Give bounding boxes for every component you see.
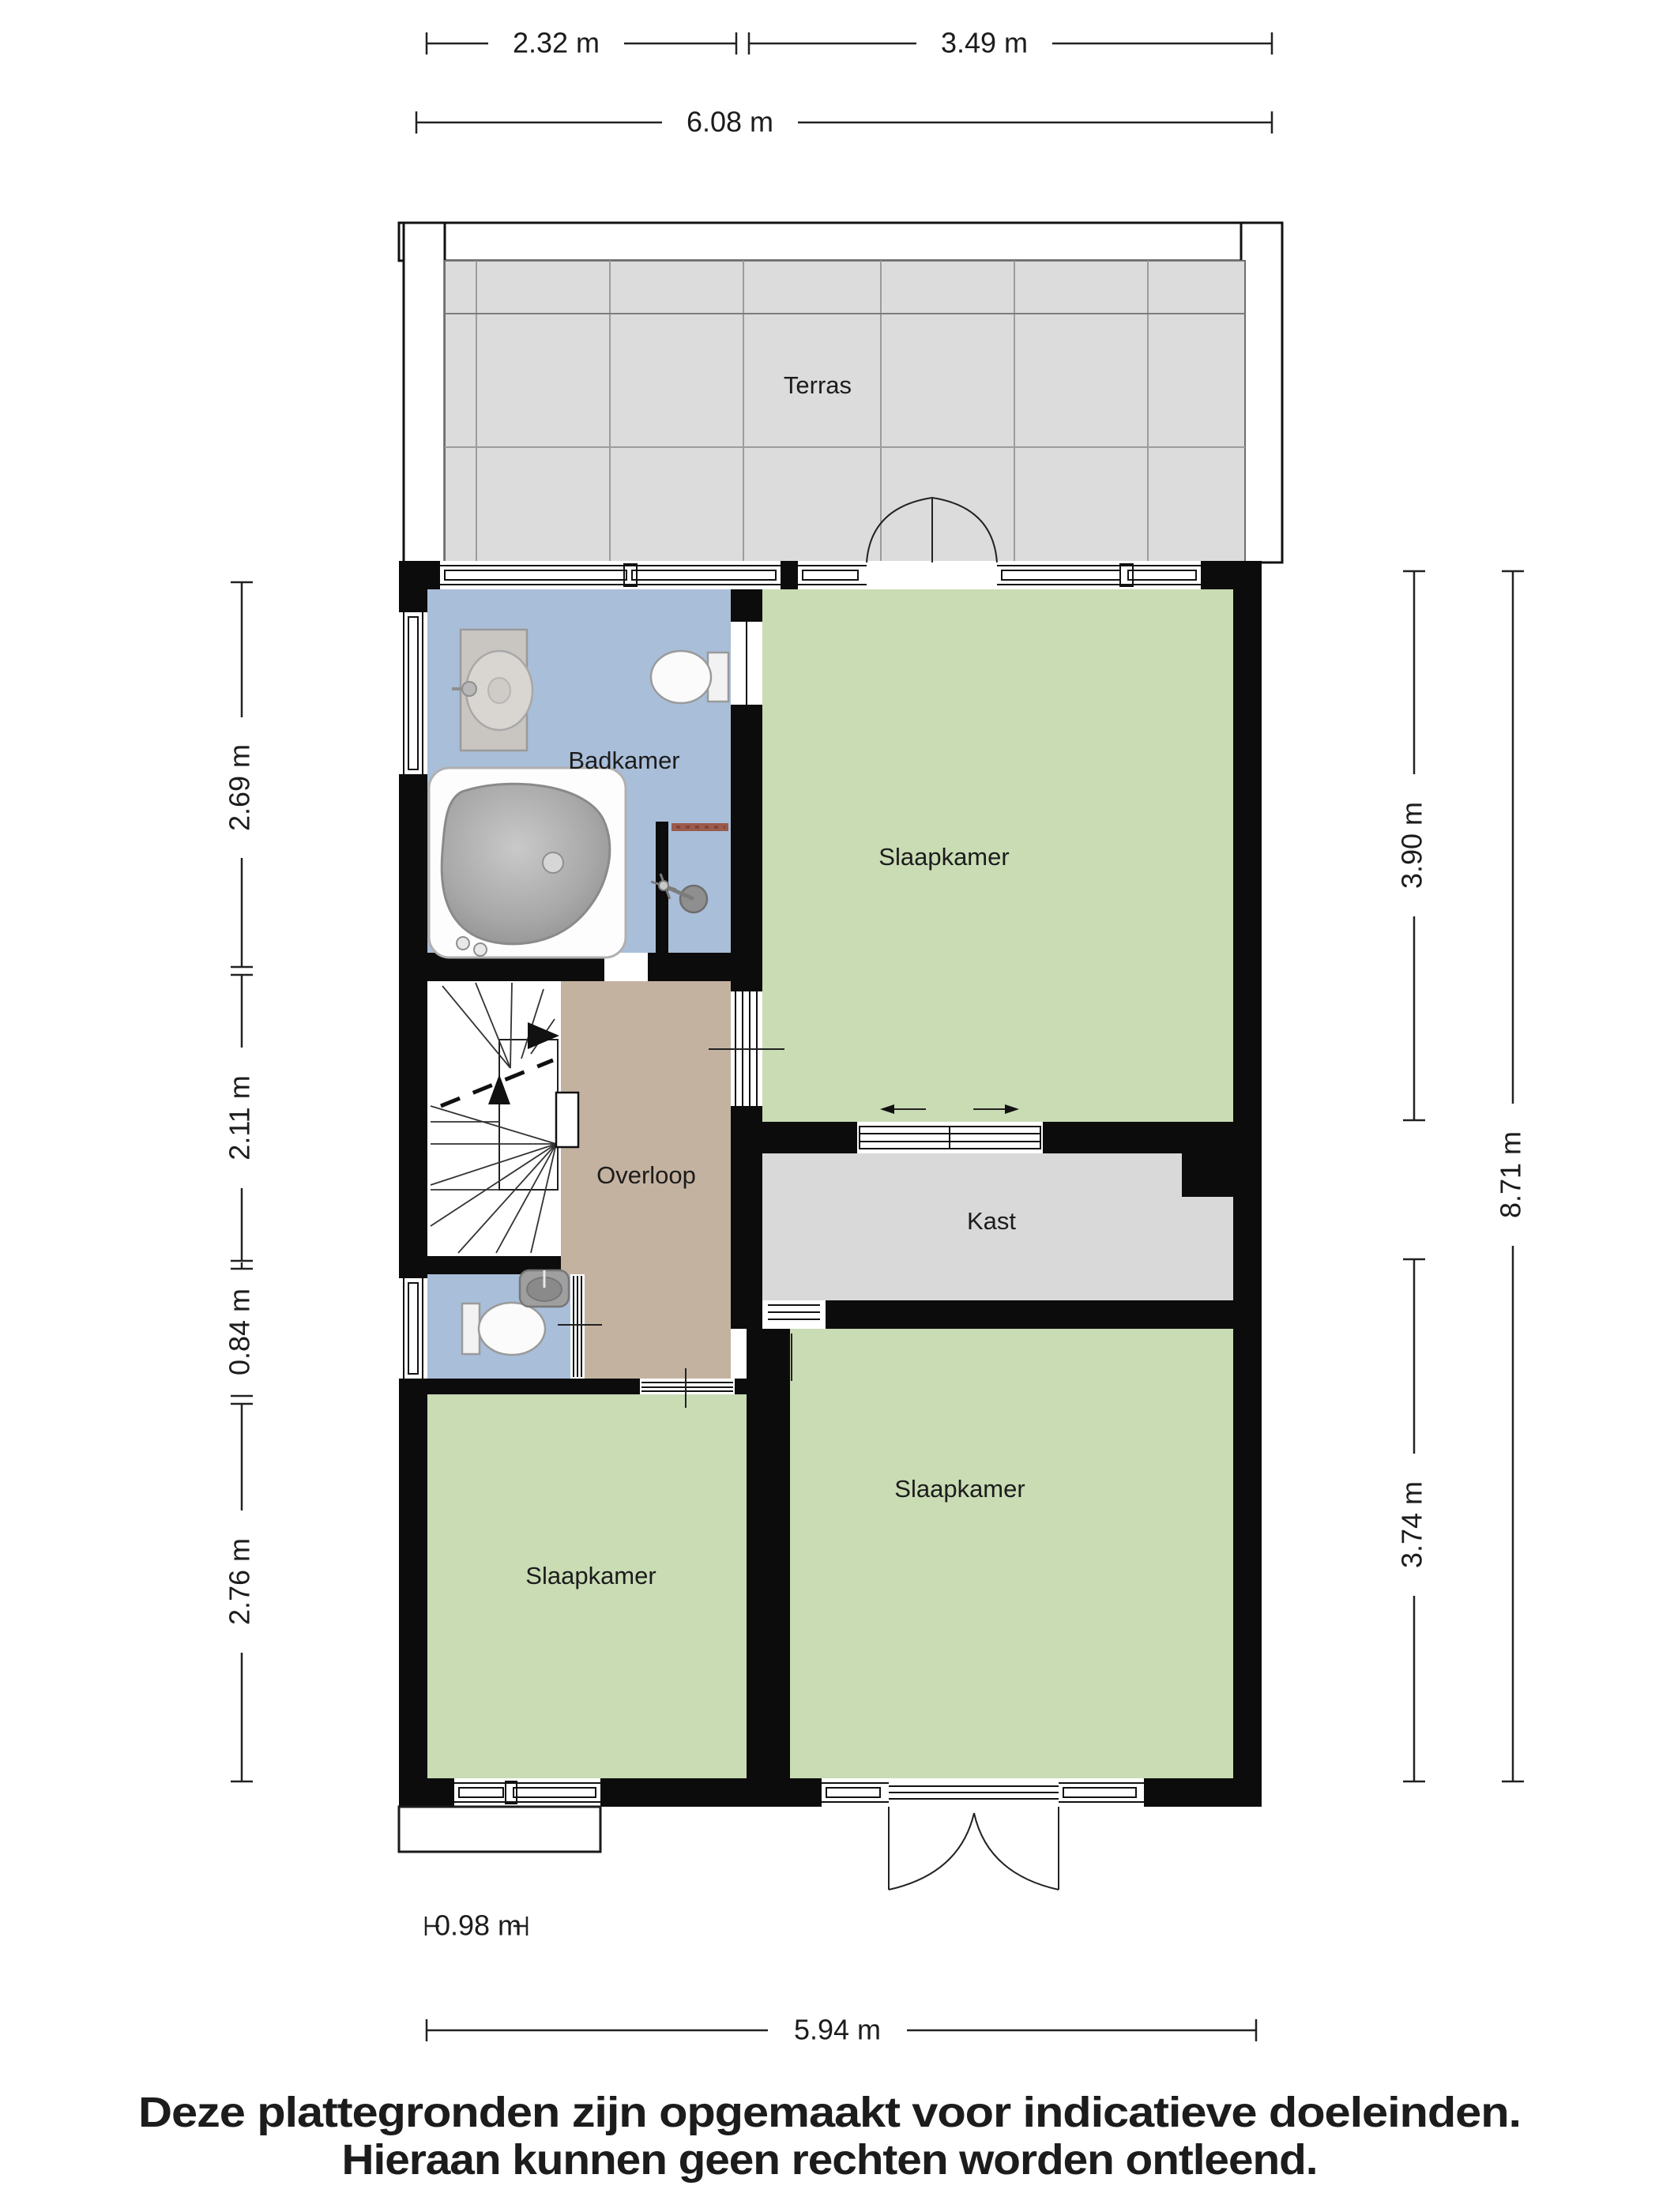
room-label-slaapkamer-top: Slaapkamer [878,843,1009,871]
dim-label-269: 2.69 m [224,744,256,831]
wc-sink [520,1270,569,1307]
dim-label-608: 6.08 m [687,106,773,138]
dimension-right-374: 3.74 m [1396,1259,1428,1781]
dimension-right-390: 3.90 m [1396,571,1428,1120]
dimension-left-276: 2.76 m [224,1404,256,1781]
floorplan-drawing: Terras [0,0,1659,2212]
dimension-bottom-594: 5.94 m [427,2014,1256,2046]
stairs-door-leaf [556,1093,578,1147]
wc-toilet [462,1303,545,1355]
dimension-left-084: 0.84 m [224,1262,256,1396]
dimension-top-232: 2.32 m [427,27,736,59]
wall-kast-corner-block [1182,1153,1233,1197]
door-garden-french [889,1807,1059,1890]
window-slaapkamer-left-bottom [454,1778,600,1807]
dim-label-390: 3.90 m [1396,802,1428,889]
room-label-slaapkamer-right: Slaapkamer [894,1475,1025,1503]
dimension-left-211: 2.11 m [224,975,256,1261]
dim-label-098: 0.98 m [434,1909,521,1942]
window-badkamer-top [440,561,781,589]
terrace-railing-top [399,223,1282,261]
dimension-top-349: 3.49 m [749,27,1272,59]
bathroom-sink [452,630,532,750]
terrace-railing-left [404,223,445,562]
disclaimer-line1: Deze plattegronden zijn opgemaakt voor i… [138,2089,1521,2136]
room-label-kast: Kast [967,1207,1016,1235]
wall-right [1233,561,1262,1807]
window-badkamer-left [399,612,427,774]
room-label-slaapkamer-left: Slaapkamer [525,1562,656,1589]
dimension-right-871: 8.71 m [1495,571,1527,1781]
wall-between-bedrooms [747,1300,790,1807]
dim-label-232: 2.32 m [513,27,600,59]
dim-label-871: 8.71 m [1495,1131,1527,1218]
ledge-outline [399,1807,600,1852]
floorplan-page: Terras [0,0,1659,2212]
terrace-floor [445,261,1245,562]
dim-label-084: 0.84 m [224,1288,256,1375]
dimension-bottom-098: 0.98 m [426,1909,527,1942]
disclaimer-line2: Hieraan kunnen geen rechten worden ontle… [342,2136,1318,2184]
terrace: Terras [399,223,1282,562]
dimension-top-608: 6.08 m [416,106,1272,138]
room-label-badkamer: Badkamer [568,747,679,774]
dim-label-349: 3.49 m [941,27,1028,59]
bathtub [429,768,626,957]
dim-label-374: 3.74 m [1396,1481,1428,1568]
bathroom-toilet [651,651,728,703]
dim-label-211: 2.11 m [224,1075,256,1160]
window-badkamer-slaapkamer [731,622,762,705]
terrace-railing-right [1241,223,1282,562]
window-wc-left [399,1278,427,1379]
window-slaapkamer-right-bottom [822,1778,1144,1807]
room-label-terras: Terras [784,371,852,399]
dimension-left-269: 2.69 m [224,582,256,967]
room-label-overloop: Overloop [596,1161,696,1189]
dim-label-276: 2.76 m [224,1538,256,1625]
dim-label-594: 5.94 m [794,2014,881,2046]
room-slaapkamer-right-floor [790,1329,1233,1778]
